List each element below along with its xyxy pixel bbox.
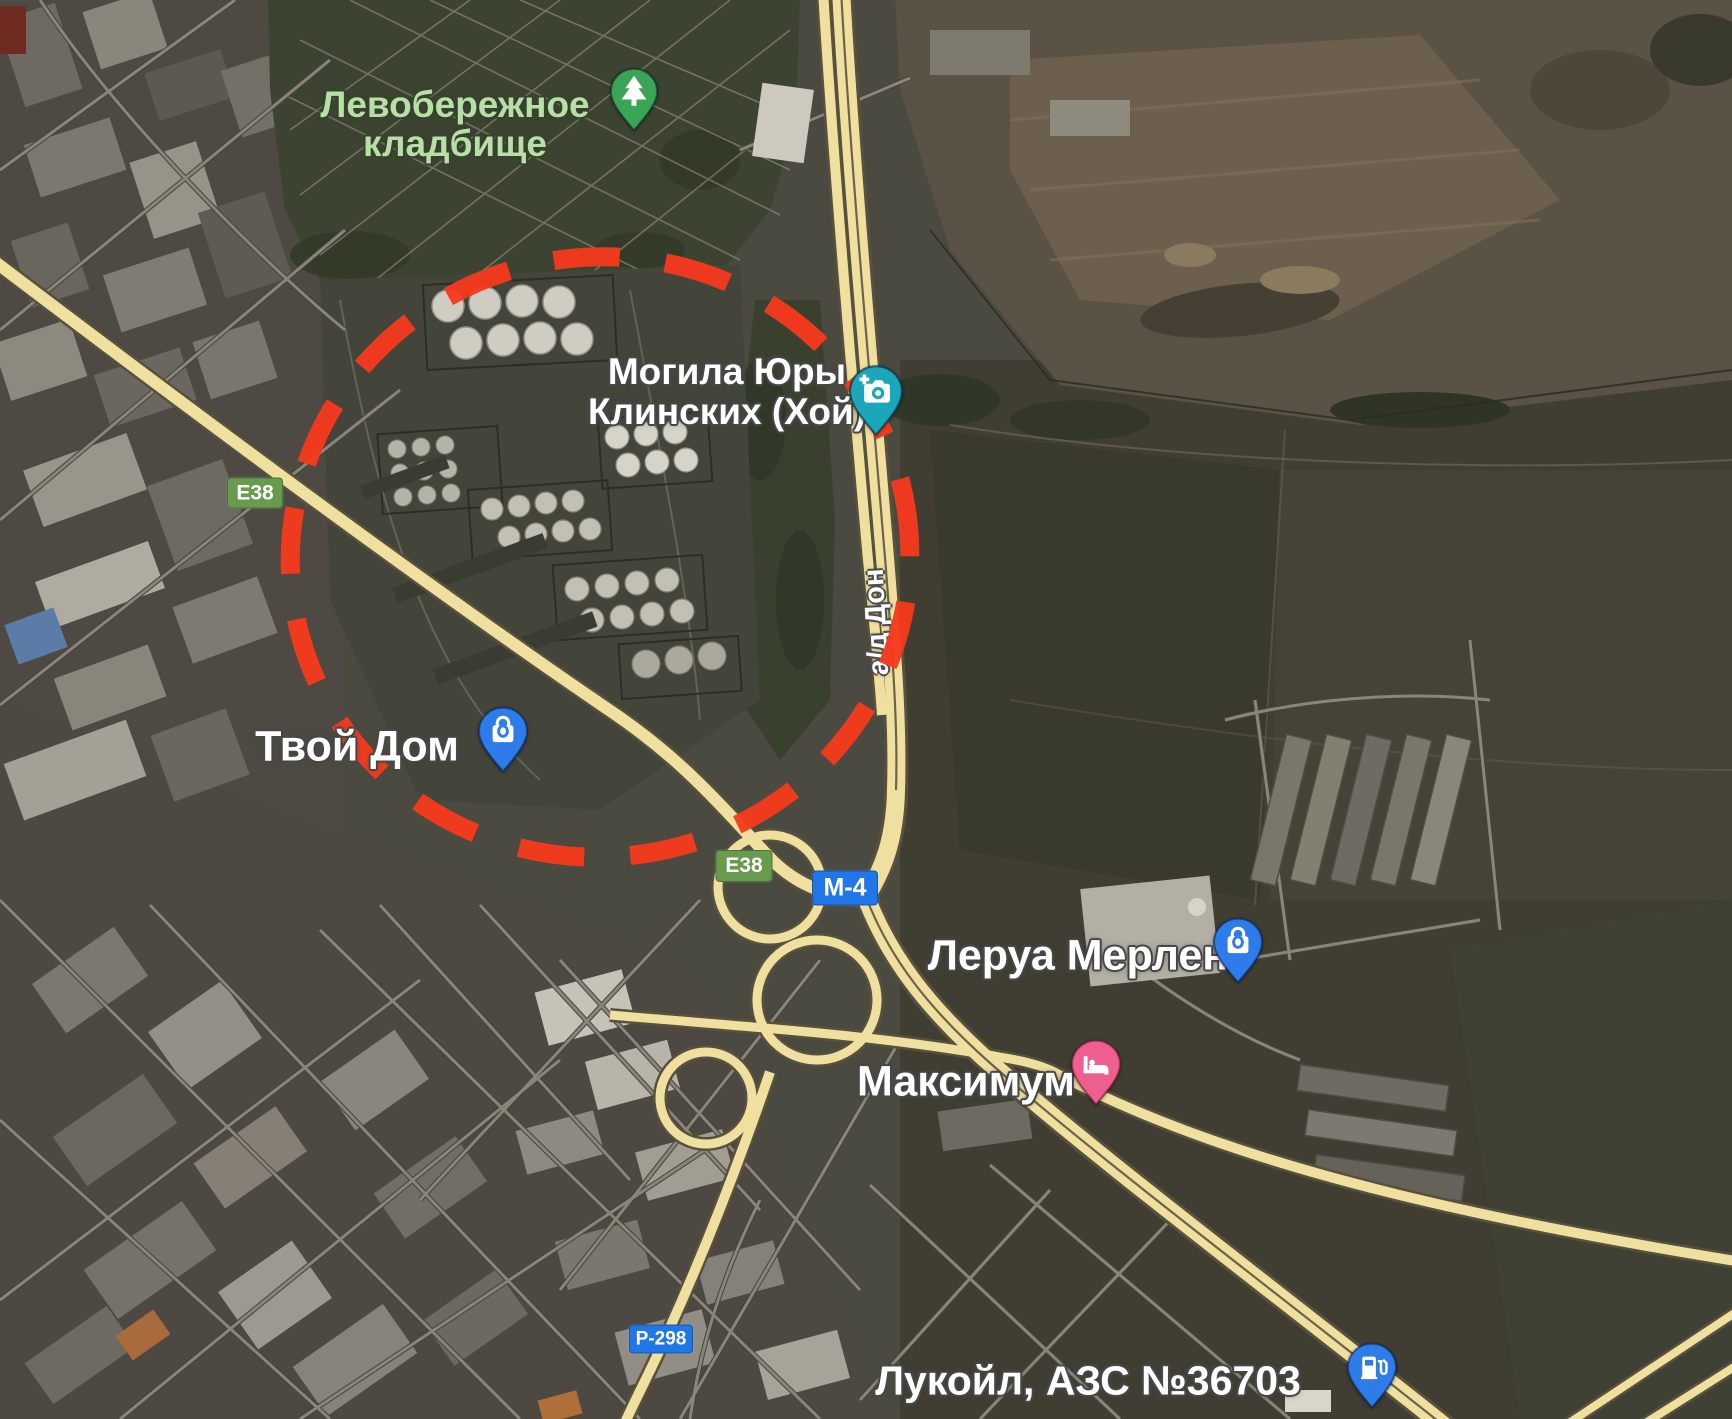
poi-pin-maximum[interactable] <box>1070 1039 1122 1112</box>
poi-label-line: Могила Юры <box>588 352 866 392</box>
poi-pin-grave[interactable] <box>848 364 904 442</box>
road-label-don: а/д Дон <box>858 568 897 676</box>
route-badge-m4: М-4 <box>812 871 878 906</box>
poi-pin-tvoy-dom[interactable] <box>477 706 529 779</box>
map-canvas[interactable]: E38 E38 М-4 Р-298 а/д Дон Левобережное к… <box>0 0 1732 1419</box>
satellite-basemap <box>0 0 1732 1419</box>
poi-label-tvoy-dom[interactable]: Твой Дом <box>255 723 459 772</box>
poi-pin-leroy-merlin[interactable] <box>1212 917 1264 990</box>
fields-right <box>880 0 1732 1419</box>
poi-label-line: Левобережное <box>320 85 589 124</box>
poi-label-line: кладбище <box>320 124 589 163</box>
poi-pin-cemetery[interactable] <box>609 67 659 137</box>
poi-label-cemetery[interactable]: Левобережное кладбище <box>320 85 589 163</box>
poi-label-lukoil[interactable]: Лукойл, АЗС №36703 <box>875 1358 1301 1405</box>
poi-label-grave[interactable]: Могила Юры Клинских (Хой) <box>588 352 866 432</box>
route-badge-e38-center: E38 <box>716 850 773 882</box>
poi-label-leroy-merlin[interactable]: Леруа Мерлен <box>928 932 1229 981</box>
poi-pin-lukoil[interactable] <box>1346 1342 1398 1415</box>
poi-label-maximum[interactable]: Максимум <box>857 1058 1075 1107</box>
route-badge-p298: Р-298 <box>629 1325 693 1354</box>
route-badge-e38-nw: E38 <box>227 478 283 509</box>
poi-label-line: Клинских (Хой) <box>588 392 866 432</box>
